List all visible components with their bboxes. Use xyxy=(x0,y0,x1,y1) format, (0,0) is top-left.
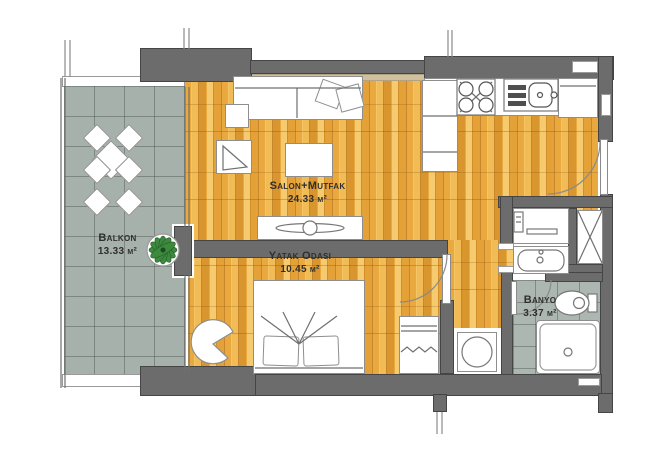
balkon-name: Balkon xyxy=(70,232,165,246)
kitchen-cabinet xyxy=(422,80,458,172)
bedroom-door-leaf xyxy=(442,254,451,304)
wall-bottom-right-corner xyxy=(598,393,613,413)
shower xyxy=(513,208,569,244)
vanity-sink xyxy=(513,246,569,274)
banyo-area: 3.37 m² xyxy=(514,308,566,321)
fridge xyxy=(558,78,598,118)
armchair xyxy=(216,140,252,174)
utility-shaft xyxy=(577,210,603,264)
yatak-odasi-area: 10.45 m² xyxy=(245,264,355,277)
window-notch-top-right xyxy=(572,61,598,73)
room-label-yatak-odasi: Yatak Odası 10.45 m² xyxy=(245,250,355,276)
wardrobe xyxy=(399,316,439,374)
wall-top-middle xyxy=(250,60,426,74)
wall-bathroom-left-upper xyxy=(500,196,513,246)
tv-console xyxy=(257,216,363,240)
coffee-table xyxy=(285,143,333,177)
banyo-name: Banyo xyxy=(514,294,566,308)
floor-plan: Balkon 13.33 m² Salon+Mutfak 24.33 m² Ya… xyxy=(0,0,660,467)
bed-pillow-icon xyxy=(302,335,339,366)
notch-bottom-band xyxy=(578,378,600,386)
salon-mutfak-name: Salon+Mutfak xyxy=(240,180,375,194)
wall-bottom-left-block xyxy=(140,366,258,396)
salon-mutfak-area: 24.33 m² xyxy=(240,194,375,207)
yatak-odasi-name: Yatak Odası xyxy=(245,250,355,264)
doorframe-bathroom-lower xyxy=(498,266,514,273)
bathtub xyxy=(536,320,600,374)
room-label-salon-mutfak: Salon+Mutfak 24.33 m² xyxy=(240,180,375,206)
wall-bedroom-hall xyxy=(440,300,454,374)
wall-shaft-divider xyxy=(568,208,577,268)
balkon-area: 13.33 m² xyxy=(70,246,165,259)
balcony-door-pier xyxy=(174,226,192,276)
side-table xyxy=(225,104,249,128)
room-label-banyo: Banyo 3.37 m² xyxy=(514,294,566,320)
wall-bathroom-top xyxy=(498,196,613,208)
wall-bottom-band xyxy=(255,374,602,396)
wall-bottom-stub xyxy=(433,394,447,412)
balcony-railing-bottom xyxy=(62,374,142,387)
bed-pillow-icon xyxy=(262,335,299,366)
entrance-door-leaf xyxy=(600,139,608,195)
room-label-balkon: Balkon 13.33 m² xyxy=(70,232,165,258)
niche-right-wall xyxy=(601,94,611,116)
doorframe-bathroom-upper xyxy=(498,243,514,250)
washing-machine xyxy=(457,332,497,372)
